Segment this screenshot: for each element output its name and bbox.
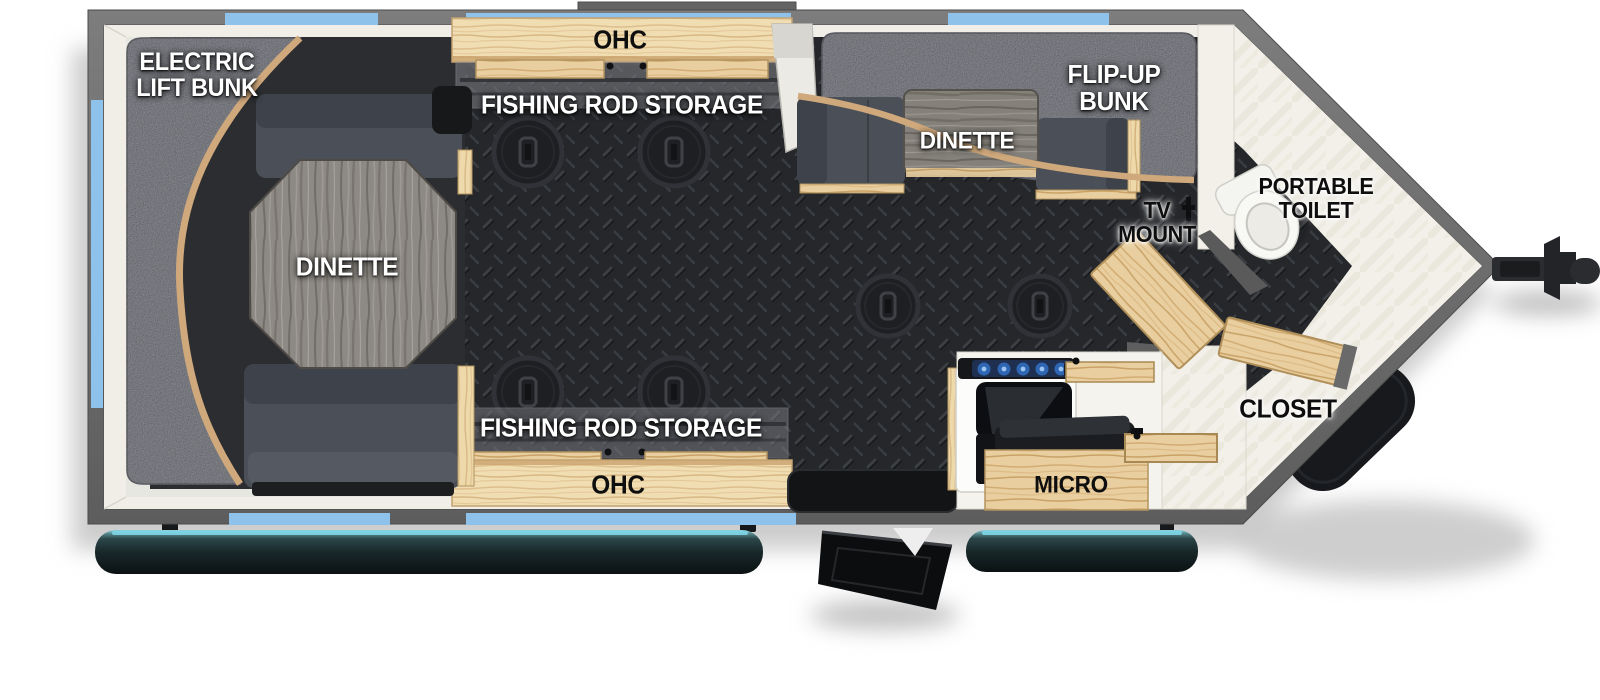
- label-flip-up-bunk: FLIP-UP BUNK: [1067, 61, 1160, 115]
- label-tv-mount: TV MOUNT: [1118, 199, 1196, 247]
- label-ohc-top: OHC: [593, 26, 646, 53]
- kitchen-end-wall: [1160, 346, 1246, 509]
- label-ohc-bottom: OHC: [591, 471, 644, 498]
- label-dinette-front: DINETTE: [920, 130, 1015, 155]
- window-top-3: [948, 13, 1109, 25]
- label-electric-lift-bunk: ELECTRIC LIFT BUNK: [136, 49, 257, 101]
- counter-hatch: [1066, 362, 1154, 382]
- label-portable-toilet: PORTABLE TOILET: [1258, 175, 1373, 223]
- fishing-hole-icon: [640, 118, 708, 186]
- fishing-hole-icon: [858, 276, 918, 336]
- front-dinette-and-flip-bunk: [797, 33, 1196, 199]
- window-bottom-1: [229, 513, 390, 525]
- floorplan-graphic: [0, 0, 1600, 700]
- label-closet: CLOSET: [1239, 395, 1336, 422]
- label-dinette-rear: DINETTE: [296, 253, 399, 280]
- hitch: [1492, 236, 1600, 300]
- rear-dinette: [244, 86, 474, 496]
- fishing-hole-icon: [1010, 276, 1070, 336]
- entry-mat: [788, 470, 958, 512]
- floorplan-diagram: ELECTRIC LIFT BUNK OHC FISHING ROD STORA…: [0, 0, 1600, 700]
- fishing-hole-icon: [494, 118, 562, 186]
- window-rear: [91, 100, 103, 408]
- label-micro: MICRO: [1034, 474, 1108, 499]
- label-fishing-rod-storage-bottom: FISHING ROD STORAGE: [480, 414, 762, 441]
- window-top-1: [225, 13, 378, 25]
- label-fishing-rod-storage-top: FISHING ROD STORAGE: [481, 91, 763, 118]
- window-bottom-2: [466, 513, 796, 525]
